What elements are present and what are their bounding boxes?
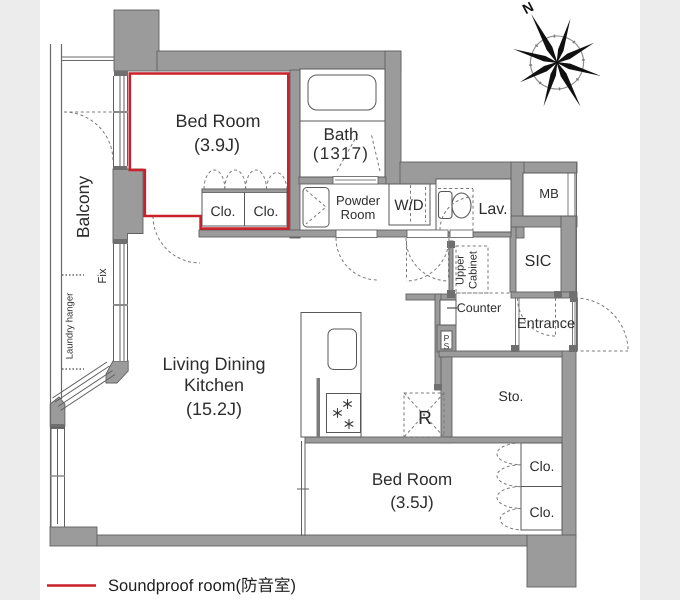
- svg-text:Cabinet: Cabinet: [468, 251, 480, 289]
- svg-text:Bed Room: Bed Room: [372, 470, 452, 489]
- svg-text:Upper: Upper: [455, 255, 467, 285]
- svg-text:Bed Room: Bed Room: [175, 111, 260, 131]
- svg-text:Counter: Counter: [457, 301, 501, 315]
- svg-text:Clo.: Clo.: [211, 203, 236, 219]
- svg-text:(15.2J): (15.2J): [186, 399, 242, 419]
- svg-text:(3.5J): (3.5J): [390, 493, 433, 512]
- svg-text:Kitchen: Kitchen: [184, 375, 244, 395]
- svg-text:Lav.: Lav.: [478, 201, 507, 218]
- svg-text:Sto.: Sto.: [499, 388, 524, 404]
- svg-text:Powder: Powder: [336, 193, 381, 208]
- svg-text:MB: MB: [539, 186, 559, 201]
- svg-text:Entrance: Entrance: [517, 316, 575, 332]
- svg-text:W/D: W/D: [394, 197, 423, 214]
- svg-text:Soundproof room(防音室): Soundproof room(防音室): [108, 576, 296, 595]
- svg-text:(1317): (1317): [313, 144, 369, 163]
- svg-text:Bath: Bath: [324, 125, 359, 144]
- svg-text:Laundry hanger: Laundry hanger: [65, 293, 76, 360]
- svg-text:Fix: Fix: [97, 268, 109, 284]
- svg-text:Clo.: Clo.: [530, 504, 555, 520]
- svg-text:Living Dining: Living Dining: [162, 354, 265, 374]
- svg-text:Clo.: Clo.: [254, 203, 279, 219]
- svg-text:SIC: SIC: [525, 253, 552, 270]
- svg-text:R: R: [418, 408, 432, 429]
- svg-text:Balcony: Balcony: [73, 176, 93, 239]
- svg-text:S: S: [444, 341, 450, 351]
- svg-text:Room: Room: [341, 207, 376, 222]
- svg-text:Clo.: Clo.: [530, 458, 555, 474]
- svg-text:(3.9J): (3.9J): [194, 135, 240, 155]
